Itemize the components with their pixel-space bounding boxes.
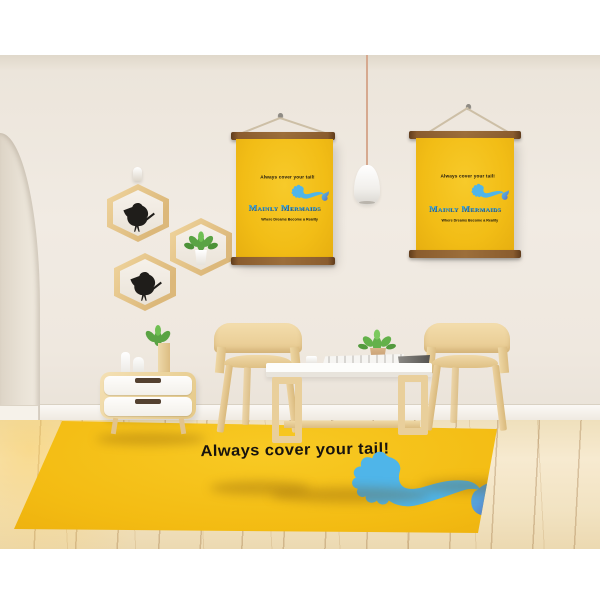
- drawer: [104, 397, 192, 416]
- poster-canvas: Always cover your tail! Mainly Mermaids …: [416, 138, 514, 253]
- poster-bottom-tagline: Where Dreams Become a Reality: [261, 217, 308, 221]
- poster-brand-name: Mainly Mermaids: [236, 204, 333, 213]
- table-leg-frame: [398, 375, 428, 435]
- plant-icon: [183, 226, 219, 252]
- poster-bottom-bar: [409, 250, 521, 258]
- drawer: [104, 376, 192, 395]
- poster-top-tagline: Always cover your tail!: [260, 174, 309, 180]
- bird-figurine-icon: [127, 267, 163, 303]
- drawer-handle-slot: [135, 378, 161, 383]
- table-leg-frame: [272, 377, 302, 443]
- chair-seat: [432, 355, 498, 368]
- poster-canvas: Always cover your tail! Mainly Mermaids …: [236, 139, 333, 261]
- pendant-lamp-opening: [359, 201, 375, 204]
- wood-vase: [158, 343, 170, 373]
- room-photo: Always cover your tail! Mainly Mermaids …: [0, 55, 600, 549]
- white-bottle: [133, 357, 144, 373]
- white-bottle: [121, 352, 130, 373]
- pendant-lamp-cord: [366, 55, 368, 167]
- mermaid-silhouette-icon: [470, 182, 510, 206]
- poster-bottom-tagline: Where Dreams Become a Reality: [441, 218, 488, 222]
- poster-brand-name: Mainly Mermaids: [416, 205, 514, 214]
- table-shadow: [270, 487, 430, 503]
- drawer-handle-slot: [135, 399, 161, 404]
- nightstand-shadow: [96, 433, 206, 445]
- pendant-lamp: [354, 165, 380, 205]
- nightstand-body: [100, 372, 196, 419]
- arch-baseboard: [0, 405, 38, 421]
- wall-hook: [133, 167, 142, 181]
- poster-top-tagline: Always cover your tail!: [441, 173, 490, 179]
- poster-bottom-bar: [231, 257, 335, 265]
- chair-backrest: [214, 323, 302, 353]
- bird-figurine-icon: [120, 198, 156, 234]
